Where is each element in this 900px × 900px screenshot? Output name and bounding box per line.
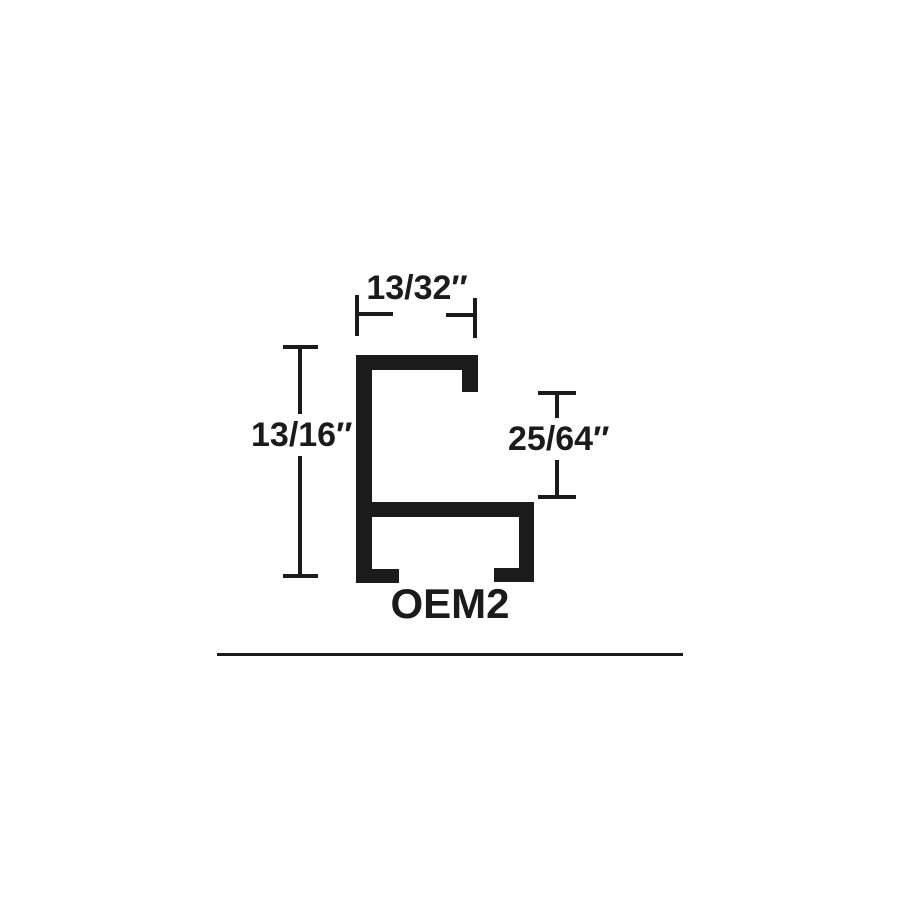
dimension-right-opening-top-tick — [538, 391, 576, 395]
dimension-left-height-top-tick — [283, 345, 318, 349]
dimension-right-opening-label: 25/64″ — [508, 418, 608, 460]
dimension-top-width-left-tick — [355, 312, 393, 316]
dimension-right-opening-bottom-tick — [538, 495, 576, 499]
profile-top-right-lip — [462, 355, 478, 392]
bottom-divider-rule — [217, 653, 683, 656]
part-name-label: OEM2 — [370, 582, 530, 626]
profile-left-stem — [356, 355, 372, 583]
dimension-top-width-right-extension — [473, 298, 477, 338]
dimension-top-width-right-tick — [446, 313, 477, 317]
moulding-profile-diagram: 13/32″ 13/16″ 25/64″ OEM2 — [0, 0, 900, 900]
dimension-left-height-bottom-tick — [283, 574, 318, 578]
dimension-left-height-label: 13/16″ — [251, 414, 351, 456]
dimension-top-width-label: 13/32″ — [357, 270, 477, 306]
profile-top-flange — [356, 355, 478, 370]
dimension-left-height-line — [298, 345, 302, 578]
profile-lower-flange — [356, 502, 534, 517]
